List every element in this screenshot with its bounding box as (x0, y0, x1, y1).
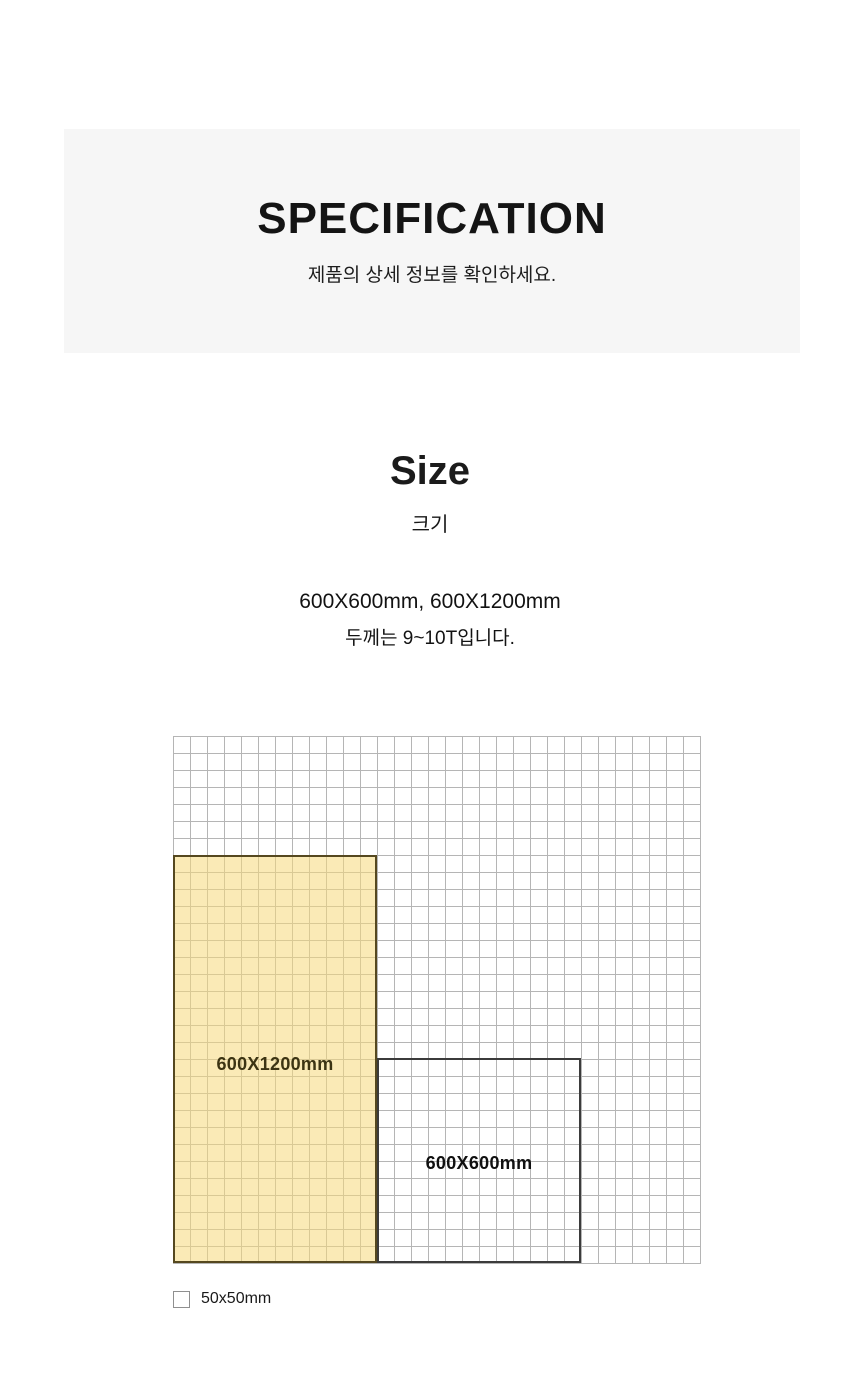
size-thickness-text: 두께는 9~10T입니다. (0, 623, 860, 650)
specification-header-band: SPECIFICATION 제품의 상세 정보를 확인하세요. (64, 129, 800, 353)
size-comparison-grid: 600X1200mm 600X600mm (173, 736, 701, 1264)
rect-600x1200-label: 600X1200mm (175, 1054, 375, 1075)
specification-title: SPECIFICATION (257, 195, 607, 243)
specification-subtitle: 제품의 상세 정보를 확인하세요. (308, 260, 556, 287)
grid-scale-legend: 50x50mm (173, 1290, 271, 1308)
rect-600x600-label: 600X600mm (379, 1153, 579, 1174)
size-dimensions-text: 600X600mm, 600X1200mm (0, 590, 860, 614)
rect-600x1200-highlight: 600X1200mm (173, 855, 377, 1263)
product-spec-page: SPECIFICATION 제품의 상세 정보를 확인하세요. Size 크기 … (0, 0, 860, 1387)
legend-cell-swatch (173, 1291, 190, 1308)
legend-label: 50x50mm (201, 1290, 271, 1308)
size-subtitle-korean: 크기 (0, 508, 860, 537)
size-title: Size (0, 448, 860, 494)
rect-600x600-outline: 600X600mm (377, 1058, 581, 1263)
size-section: Size 크기 600X600mm, 600X1200mm 두께는 9~10T입… (0, 448, 860, 650)
